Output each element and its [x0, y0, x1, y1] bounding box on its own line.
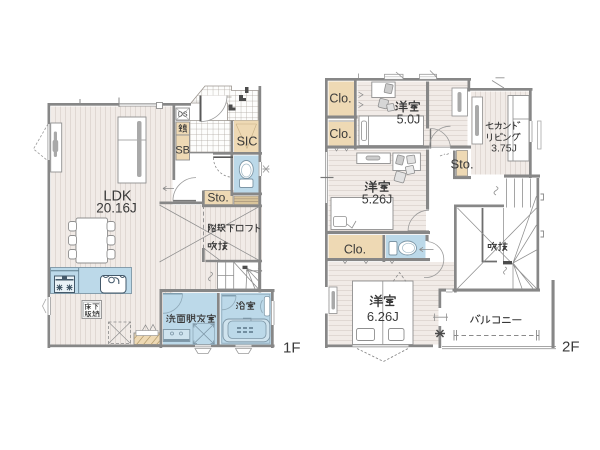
svg-text:Clo.: Clo. [344, 243, 366, 257]
svg-text:Clo.: Clo. [329, 92, 351, 106]
svg-text:SB: SB [175, 145, 190, 157]
svg-text:Sto.: Sto. [450, 157, 473, 172]
svg-text:3.75J: 3.75J [491, 143, 517, 155]
svg-text:5.26J: 5.26J [362, 193, 393, 207]
svg-text:1F: 1F [283, 340, 301, 357]
svg-text:20.16J: 20.16J [96, 201, 137, 216]
svg-text:6.26J: 6.26J [367, 309, 399, 324]
svg-text:Clo.: Clo. [329, 127, 351, 141]
svg-text:SIC: SIC [237, 135, 258, 149]
svg-text:2F: 2F [562, 339, 580, 356]
svg-text:Sto.: Sto. [207, 191, 228, 205]
svg-text:5.0J: 5.0J [397, 113, 421, 127]
svg-text:DS: DS [178, 112, 188, 119]
